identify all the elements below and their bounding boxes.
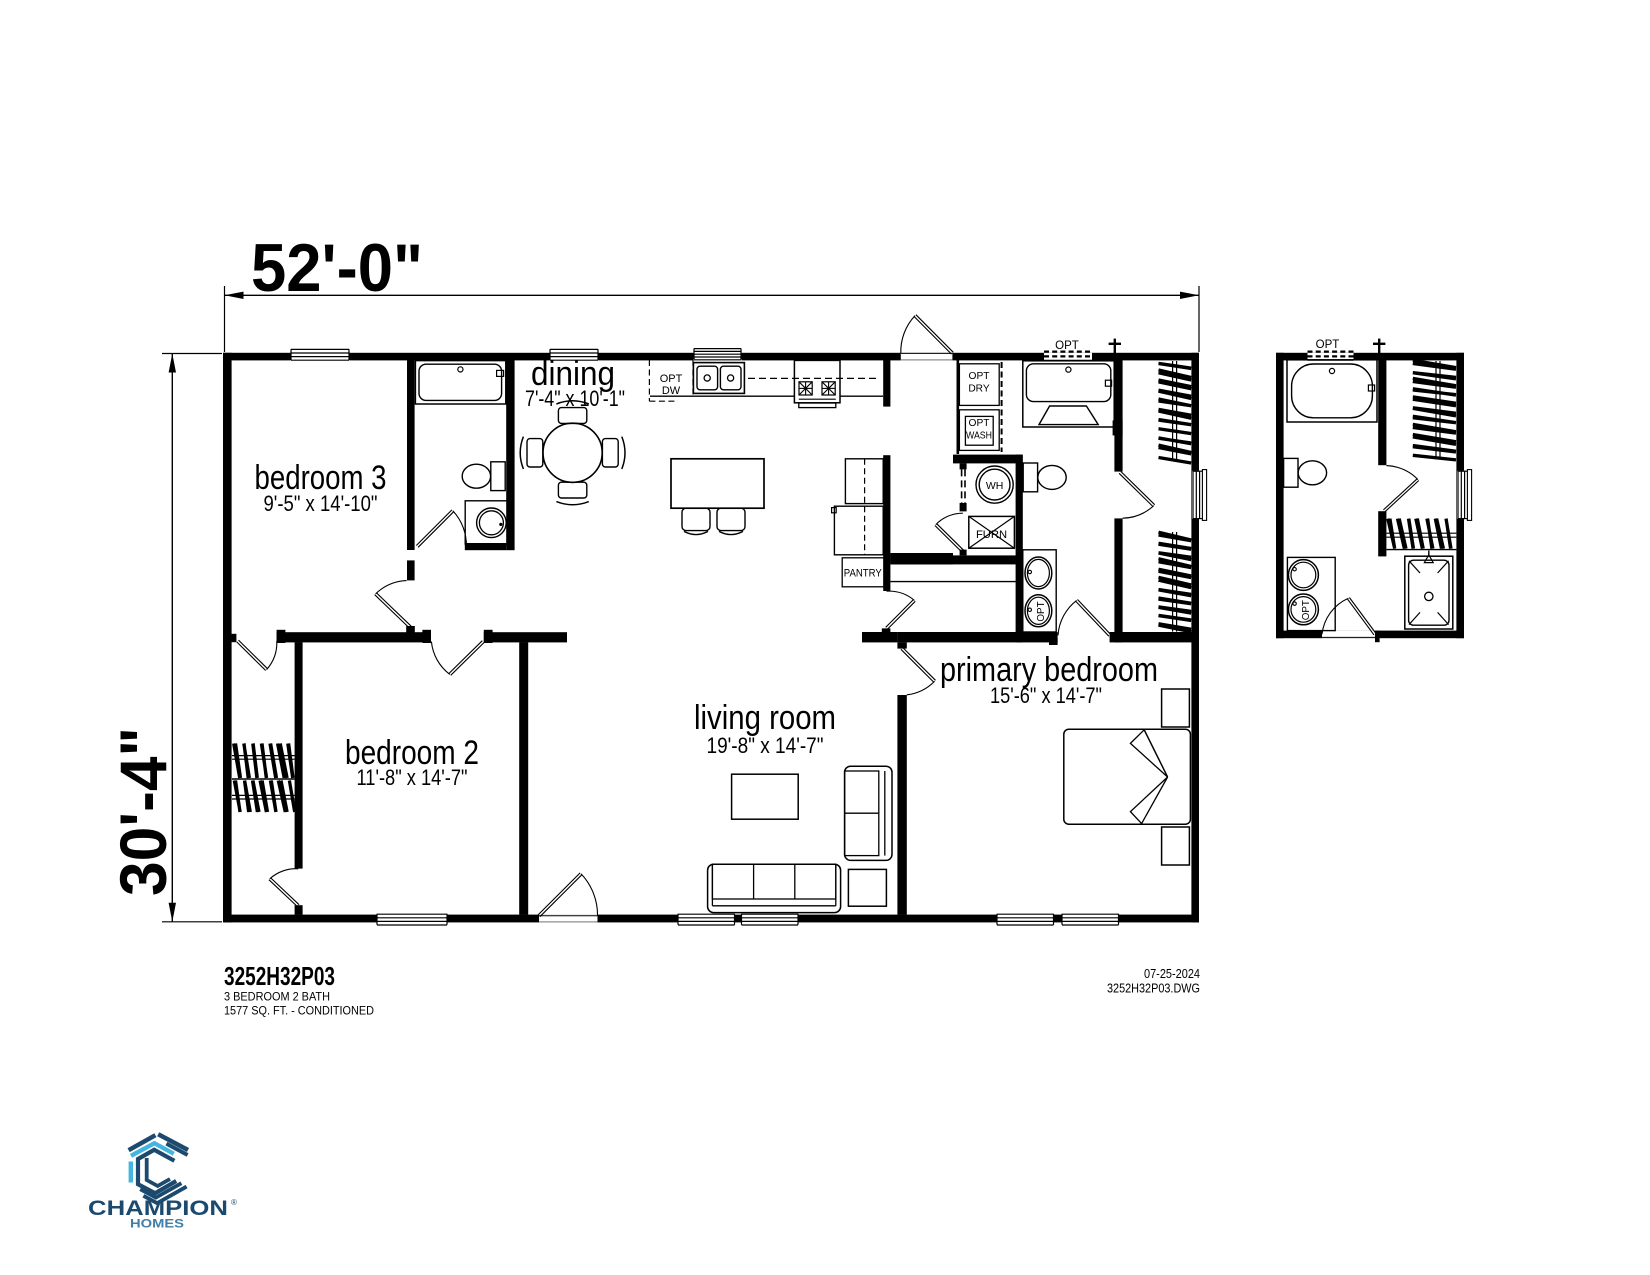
- svg-text:OPT: OPT: [1316, 339, 1340, 351]
- svg-text:OPT: OPT: [660, 373, 683, 385]
- svg-text:19'-8" x 14'-7": 19'-8" x 14'-7": [707, 733, 824, 758]
- svg-text:OPT: OPT: [1036, 601, 1047, 621]
- svg-text:30'-4": 30'-4": [106, 727, 180, 896]
- svg-text:PANTRY: PANTRY: [844, 568, 882, 580]
- svg-text:11'-8" x 14'-7": 11'-8" x 14'-7": [357, 765, 468, 790]
- svg-text:3 BEDROOM 2 BATH: 3 BEDROOM 2 BATH: [224, 991, 330, 1004]
- svg-text:OPT: OPT: [1055, 340, 1079, 352]
- svg-text:OPT: OPT: [1301, 600, 1312, 620]
- svg-text:living room: living room: [694, 699, 836, 737]
- svg-text:DW: DW: [662, 385, 681, 397]
- svg-text:3252H32P03.DWG: 3252H32P03.DWG: [1107, 982, 1200, 996]
- svg-text:9'-5" x 14'-10": 9'-5" x 14'-10": [264, 491, 378, 516]
- svg-text:1577 SQ. FT. - CONDITIONED: 1577 SQ. FT. - CONDITIONED: [224, 1005, 374, 1018]
- svg-text:HOMES: HOMES: [130, 1219, 184, 1231]
- svg-text:3252H32P03: 3252H32P03: [224, 963, 335, 991]
- svg-text:OPT: OPT: [969, 371, 990, 382]
- svg-text:DRY: DRY: [968, 384, 990, 395]
- svg-text:15'-6" x 14'-7": 15'-6" x 14'-7": [990, 683, 1102, 708]
- svg-text:OPT: OPT: [969, 418, 990, 429]
- svg-text:WH: WH: [986, 480, 1004, 492]
- svg-text:WASH: WASH: [966, 431, 992, 442]
- svg-text:7'-4" x 10'-1": 7'-4" x 10'-1": [525, 386, 625, 411]
- svg-text:CHAMPION: CHAMPION: [88, 1196, 228, 1220]
- svg-text:FURN: FURN: [976, 529, 1007, 541]
- svg-text:52'-0": 52'-0": [251, 230, 423, 306]
- svg-text:07-25-2024: 07-25-2024: [1144, 967, 1200, 981]
- svg-text:®: ®: [231, 1198, 237, 1207]
